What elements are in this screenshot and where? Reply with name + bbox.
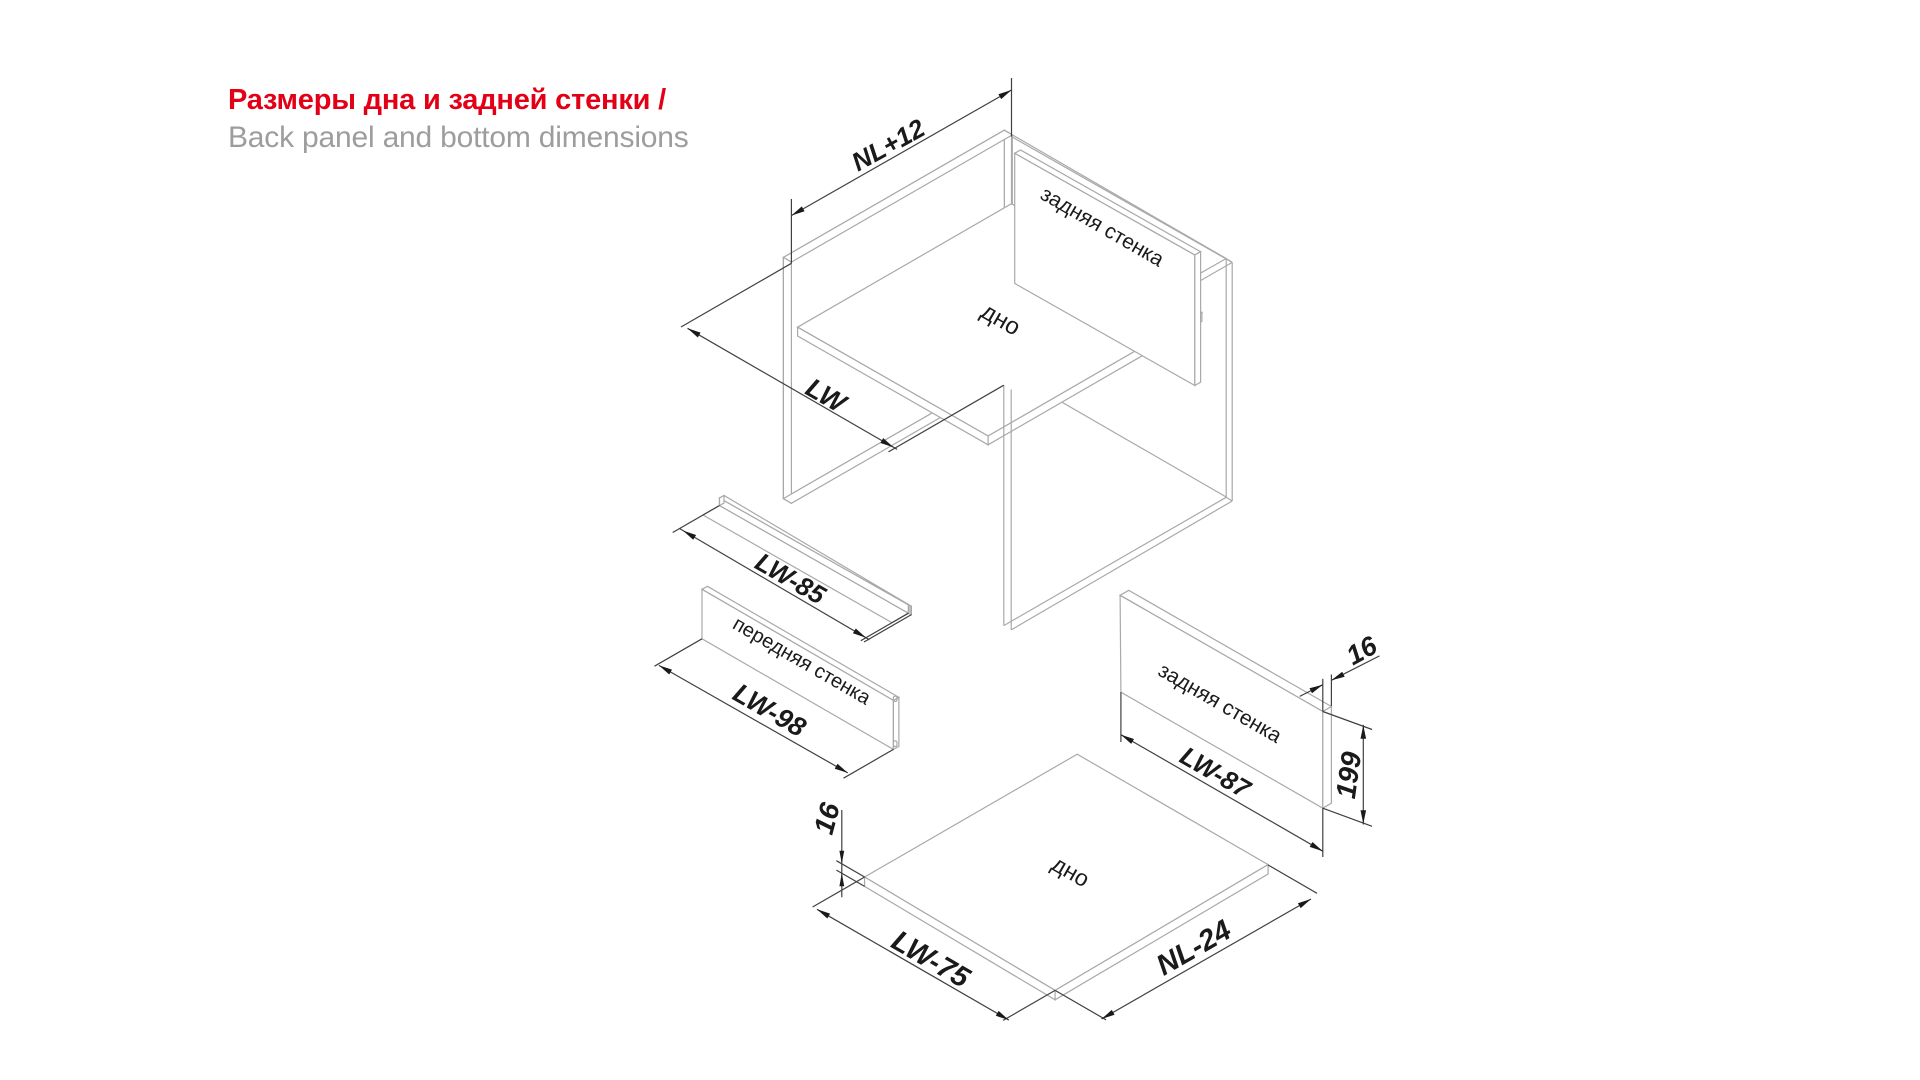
svg-text:NL+12: NL+12 xyxy=(846,112,930,177)
svg-text:16: 16 xyxy=(808,799,846,838)
svg-text:199: 199 xyxy=(1330,749,1367,800)
svg-text:16: 16 xyxy=(1341,630,1383,671)
